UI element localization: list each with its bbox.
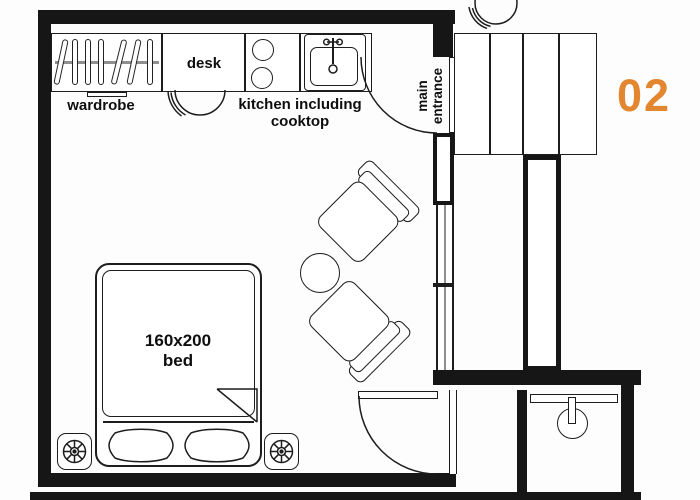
shower-stem xyxy=(568,397,576,424)
main-entrance-label-line2: entrance xyxy=(430,68,445,124)
hollow-wall-column xyxy=(523,155,561,371)
bottom-door-arc xyxy=(359,396,437,474)
hanger-icon xyxy=(72,39,78,85)
right-wall-segment xyxy=(433,133,454,205)
hanger-icon xyxy=(98,39,104,85)
cabinet-divider xyxy=(558,34,560,154)
unit-number: 02 xyxy=(601,70,687,122)
window-divider xyxy=(433,283,454,287)
cabinet-divider xyxy=(489,34,491,154)
desk-chair-arc xyxy=(168,91,182,116)
main-entrance-label: main entrance xyxy=(411,60,449,132)
cooktop-burner-icon xyxy=(252,39,274,61)
blanket-edge-line xyxy=(103,421,254,423)
kitchen-label-line1: kitchen including xyxy=(230,96,370,113)
corner-chair-arc xyxy=(473,8,491,26)
bottom-wall xyxy=(38,473,456,487)
nightstand-right xyxy=(264,433,299,470)
cooktop-burner-icon xyxy=(251,67,273,89)
counter-divider xyxy=(244,34,246,91)
bottom-door-jamb xyxy=(449,390,457,474)
outer-bottom-wall xyxy=(30,492,641,500)
kitchen-label-line2: cooktop xyxy=(230,113,370,130)
top-wall xyxy=(38,10,455,24)
bed-size-label: 160x200 xyxy=(128,331,228,351)
entrance-corner-wall xyxy=(433,10,453,57)
bottom-door-leaf xyxy=(358,391,438,399)
counter-divider xyxy=(299,34,301,91)
cabinet-divider xyxy=(522,34,524,154)
main-entrance-label-line1: main xyxy=(415,80,430,112)
nightstand-left xyxy=(57,433,92,470)
corner-chair xyxy=(475,0,517,24)
bed-label: bed xyxy=(128,351,228,371)
left-wall xyxy=(38,10,51,487)
desk-chair xyxy=(175,90,225,115)
desk-chair-arc xyxy=(171,93,186,116)
side-table xyxy=(300,253,340,293)
desk-label: desk xyxy=(164,55,244,72)
hanger-icon xyxy=(85,39,91,85)
small-room-right-wall xyxy=(621,385,634,500)
wardrobe-label: wardrobe xyxy=(51,97,151,114)
hanger-icon xyxy=(147,39,153,85)
corridor-cabinet xyxy=(454,33,597,155)
wardrobe-rail xyxy=(55,61,159,64)
lower-horizontal-wall xyxy=(433,370,641,385)
floor-plan: wardrobe desk kitchen including cooktop … xyxy=(0,0,700,500)
corner-chair-arc xyxy=(469,7,487,28)
small-room-left-wall xyxy=(517,390,527,500)
sink-basin xyxy=(310,47,358,86)
window-glass-line xyxy=(444,205,446,370)
